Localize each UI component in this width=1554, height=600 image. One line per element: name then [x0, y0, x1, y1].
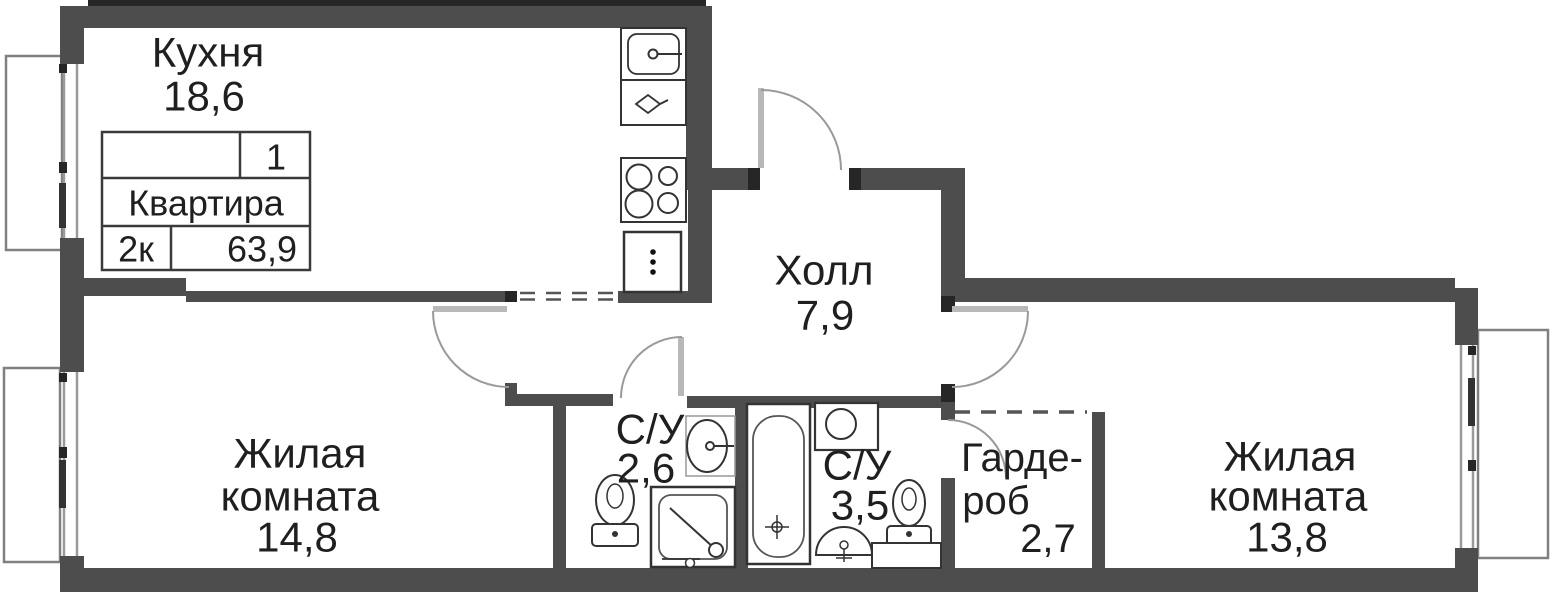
- bath1-area: 2,6: [617, 445, 675, 492]
- wardrobe-right-wall: [1092, 412, 1105, 570]
- hall-name: Холл: [775, 247, 874, 294]
- floor-plan-svg: 1 Квартира 2к 63,9 Кухня 18,6 Холл 7,9 Ж…: [0, 0, 1554, 600]
- right-outer-wall-lower: [1455, 548, 1478, 592]
- living1-door: [433, 309, 509, 387]
- toilet-icon-bath2: [887, 480, 931, 547]
- kitchen-name: Кухня: [152, 29, 264, 76]
- entrance-door: [761, 88, 841, 170]
- info-table-position: 1: [266, 137, 286, 178]
- bottom-wall: [60, 568, 1478, 592]
- shower-icon: [651, 487, 735, 568]
- living2-balcony-outline: [1478, 330, 1548, 558]
- kitchen-hall-divider-wall: [688, 190, 712, 302]
- living1-label: Жилая комната 14,8: [221, 430, 380, 561]
- apartment-info-table: 1 Квартира 2к 63,9: [102, 132, 310, 270]
- entrance-door-cap-left: [748, 168, 760, 190]
- kitchen-living-wall-thick: [60, 278, 186, 296]
- kitchen-fixtures: [621, 28, 686, 292]
- info-table-label: Квартира: [128, 183, 285, 224]
- bathtub-icon: [747, 404, 810, 564]
- kitchen-area: 18,6: [163, 73, 245, 120]
- living1-balcony-outline: [4, 368, 60, 562]
- vestibule-door-arc: [952, 311, 1028, 387]
- bath2-label: С/У 3,5: [823, 442, 892, 529]
- living1-area: 14,8: [256, 514, 338, 561]
- kitchen-label: Кухня 18,6: [152, 29, 264, 120]
- kitchen-sink-icon: [621, 28, 686, 80]
- bath1-label: С/У 2,6: [616, 406, 685, 492]
- info-table-rooms-count: 2к: [118, 229, 154, 270]
- kitchen-balcony-outline: [6, 56, 62, 250]
- floor-plan: 1 Квартира 2к 63,9 Кухня 18,6 Холл 7,9 Ж…: [0, 0, 1554, 600]
- hall-area: 7,9: [796, 292, 854, 339]
- kitchen-counter-icon: [621, 80, 686, 125]
- wardrobe-name-line1: Гарде-: [961, 436, 1083, 480]
- entrance-door-cap-right: [849, 168, 861, 190]
- bath2-right-wall-lower: [941, 478, 955, 570]
- bath1-door: [621, 337, 682, 398]
- living1-name-line1: Жилая: [234, 430, 367, 477]
- living2-name-line2: комната: [1209, 473, 1368, 520]
- info-table-total-area: 63,9: [227, 229, 297, 270]
- entrance-door-arc: [761, 90, 841, 170]
- living1-door-cap-top: [505, 291, 517, 302]
- stove-icon: [621, 158, 686, 222]
- bath1-door-arc: [621, 337, 682, 398]
- sink-icon-bath1: [686, 416, 735, 476]
- vestibule-door: [952, 309, 1028, 387]
- kitchen-living-wall-thin: [186, 291, 517, 302]
- living2-label: Жилая комната 13,8: [1209, 433, 1368, 561]
- wardrobe-area: 2,7: [1020, 517, 1076, 561]
- duct-shaft: [872, 543, 941, 568]
- fridge-icon: [624, 232, 681, 292]
- bath1-left-wall: [553, 396, 566, 570]
- living1-door-arc: [433, 311, 509, 387]
- kitchen-right-wall: [686, 6, 712, 190]
- living1-window: [59, 372, 77, 556]
- living1-name-line2: комната: [221, 473, 380, 520]
- living2-top-wall: [941, 278, 1455, 302]
- living1-left-wall-upper: [60, 302, 84, 372]
- kitchen-left-wall-upper: [60, 6, 84, 64]
- living2-area: 13,8: [1246, 514, 1328, 561]
- wardrobe-label: Гарде- роб 2,7: [961, 436, 1083, 561]
- bath2-area: 3,5: [831, 482, 889, 529]
- right-outer-wall-upper: [1455, 288, 1478, 345]
- kitchen-top-wall: [60, 6, 712, 28]
- sink-icon-bath2: [816, 527, 872, 562]
- living2-window: [1461, 345, 1476, 548]
- hall-label: Холл 7,9: [775, 247, 874, 339]
